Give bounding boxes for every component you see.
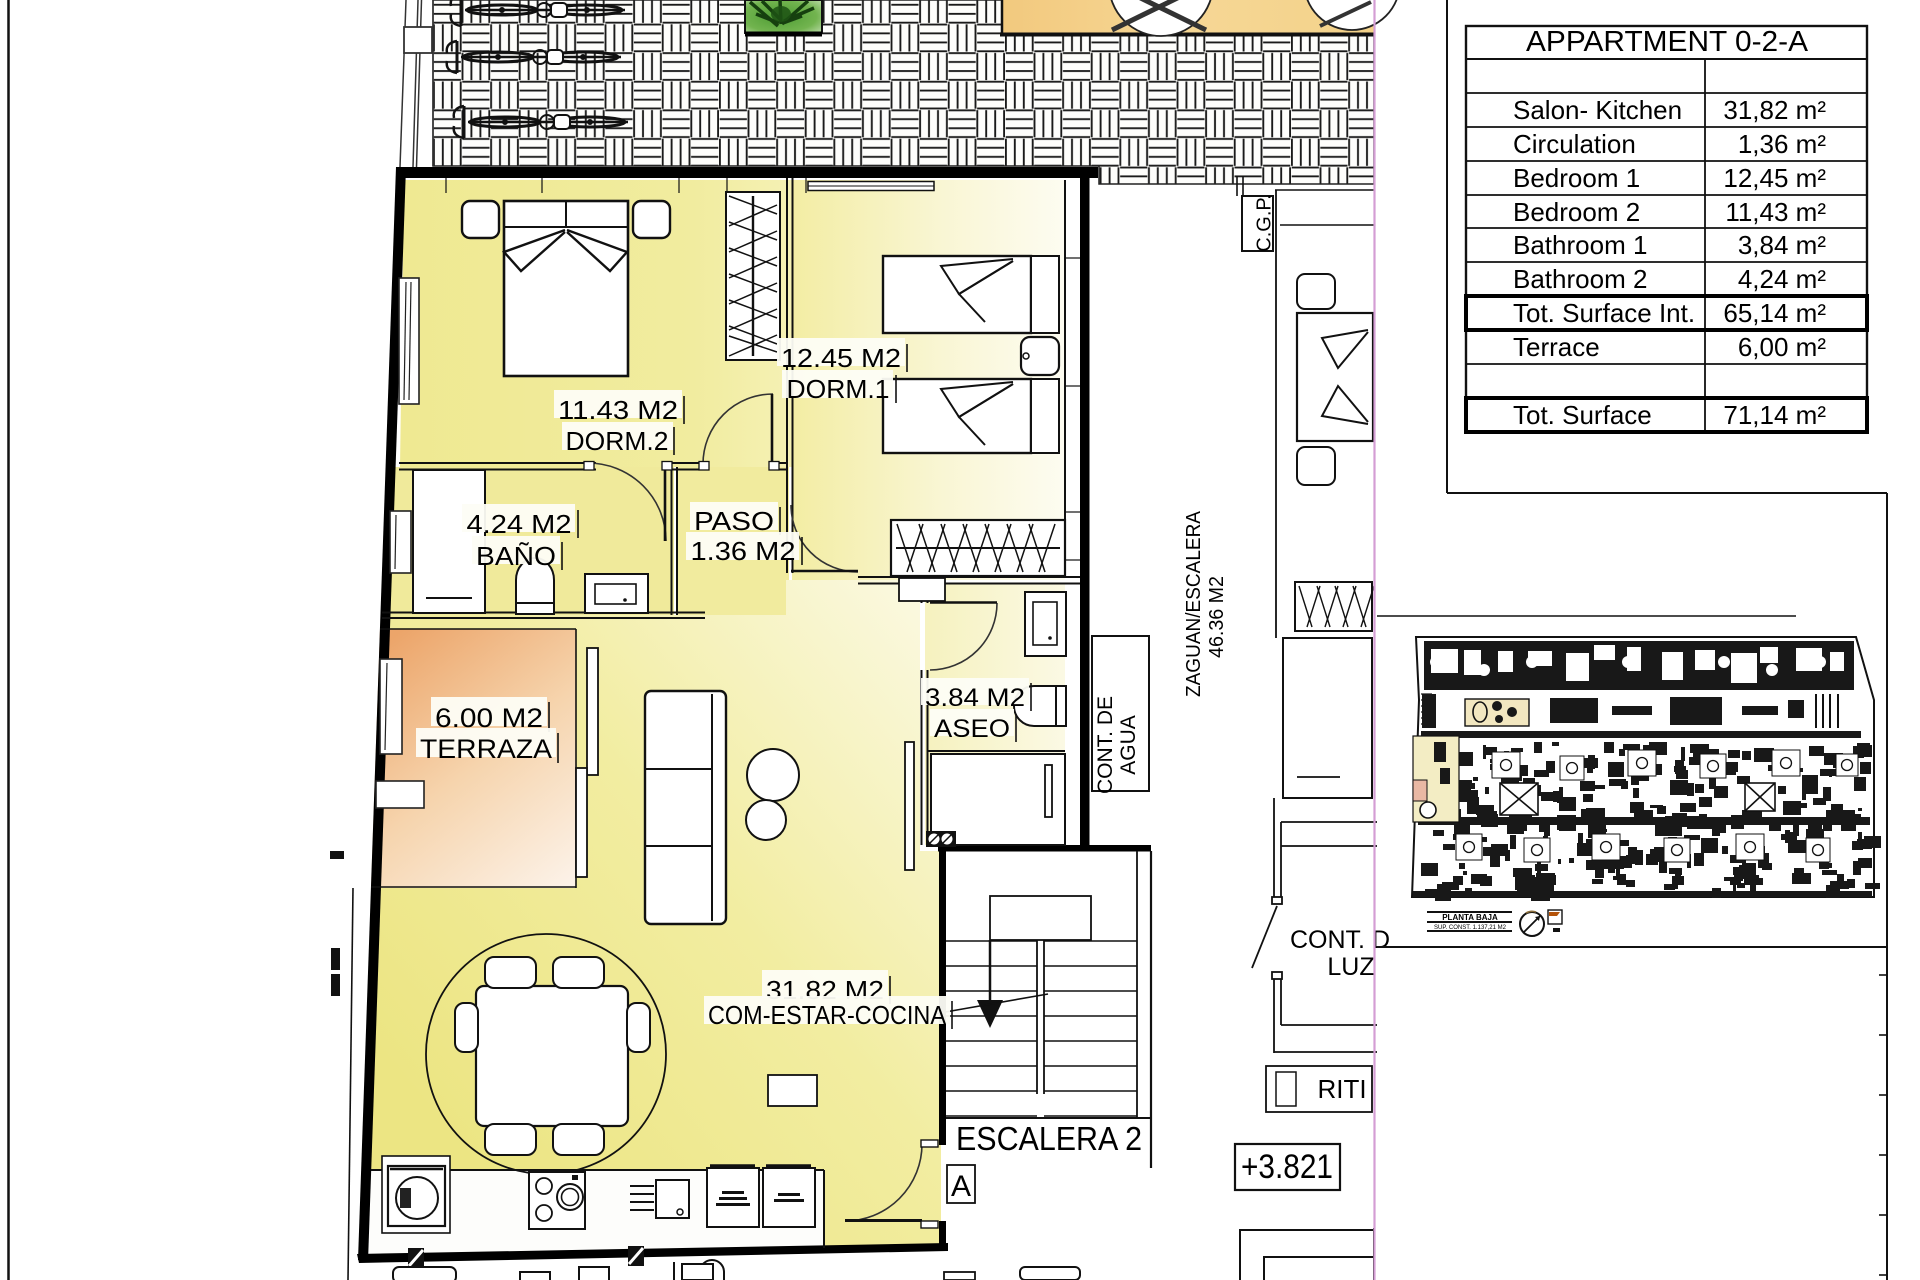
svg-text:ESCALERA 2: ESCALERA 2	[956, 1120, 1142, 1157]
svg-text:A: A	[951, 1170, 971, 1203]
svg-text:3.84 M2: 3.84 M2	[925, 684, 1025, 712]
svg-text:LUZ: LUZ	[1327, 953, 1374, 981]
svg-text:31,82 m²: 31,82 m²	[1723, 95, 1826, 125]
svg-text:3,84 m²: 3,84 m²	[1738, 230, 1826, 260]
svg-text:4,24 m²: 4,24 m²	[1738, 264, 1826, 294]
svg-text:Salon- Kitchen: Salon- Kitchen	[1513, 95, 1682, 125]
svg-text:AGUA: AGUA	[1117, 715, 1140, 775]
svg-text:6,00 m²: 6,00 m²	[1738, 332, 1826, 362]
svg-text:11,43 m²: 11,43 m²	[1725, 197, 1826, 227]
svg-text:+3.821: +3.821	[1241, 1148, 1333, 1186]
svg-text:RITI: RITI	[1317, 1074, 1366, 1104]
svg-text:DORM.1: DORM.1	[787, 374, 890, 404]
svg-text:71,14 m²: 71,14 m²	[1723, 400, 1826, 430]
svg-text:APPARTMENT 0-2-A: APPARTMENT 0-2-A	[1526, 26, 1809, 58]
svg-text:COM-ESTAR-COCINA: COM-ESTAR-COCINA	[708, 1000, 947, 1030]
svg-text:Bedroom 1: Bedroom 1	[1513, 163, 1640, 193]
svg-text:ASEO: ASEO	[934, 715, 1010, 743]
svg-text:Circulation: Circulation	[1513, 129, 1636, 159]
svg-text:4.24 M2: 4.24 M2	[467, 509, 572, 539]
svg-text:DORM.2: DORM.2	[566, 426, 669, 456]
svg-text:TERRAZA: TERRAZA	[420, 734, 552, 764]
svg-text:ZAGUAN/ESCALERA: ZAGUAN/ESCALERA	[1183, 510, 1205, 697]
svg-text:Bedroom 2: Bedroom 2	[1513, 197, 1640, 227]
svg-text:SUP. CONST. 1.137,21 M2: SUP. CONST. 1.137,21 M2	[1434, 925, 1507, 931]
svg-text:65,14 m²: 65,14 m²	[1723, 298, 1826, 328]
svg-text:Tot. Surface Int.: Tot. Surface Int.	[1513, 298, 1695, 328]
svg-text:Bathroom 2: Bathroom 2	[1513, 264, 1647, 294]
svg-text:12,45 m²: 12,45 m²	[1723, 163, 1826, 193]
svg-text:CONT. DE: CONT. DE	[1094, 696, 1117, 794]
svg-text:PASO: PASO	[694, 506, 774, 536]
svg-text:BAÑO: BAÑO	[476, 541, 556, 571]
svg-text:12.45 M2: 12.45 M2	[781, 343, 901, 373]
svg-text:1.36 M2: 1.36 M2	[691, 536, 796, 566]
svg-text:PLANTA BAJA: PLANTA BAJA	[1442, 913, 1498, 922]
svg-text:Tot. Surface: Tot. Surface	[1513, 400, 1652, 430]
svg-text:11.43 M2: 11.43 M2	[558, 395, 678, 425]
svg-text:1,36 m²: 1,36 m²	[1738, 129, 1826, 159]
svg-text:C.G.P.: C.G.P.	[1253, 194, 1275, 251]
svg-text:Bathroom 1: Bathroom 1	[1513, 230, 1647, 260]
svg-text:Terrace: Terrace	[1513, 332, 1600, 362]
svg-text:46.36 M2: 46.36 M2	[1206, 576, 1228, 658]
